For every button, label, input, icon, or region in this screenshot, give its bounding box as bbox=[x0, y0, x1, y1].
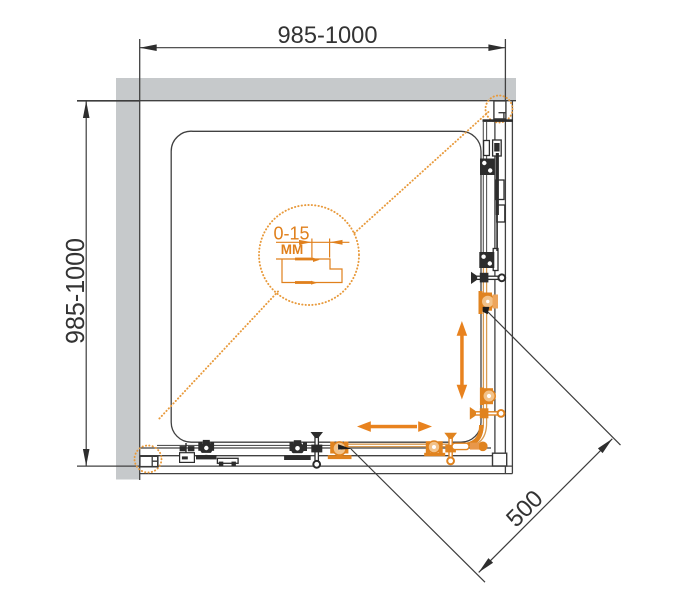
svg-text:985-1000: 985-1000 bbox=[60, 238, 90, 344]
svg-text:985-1000: 985-1000 bbox=[278, 22, 378, 49]
svg-text:0-15: 0-15 bbox=[273, 224, 309, 244]
